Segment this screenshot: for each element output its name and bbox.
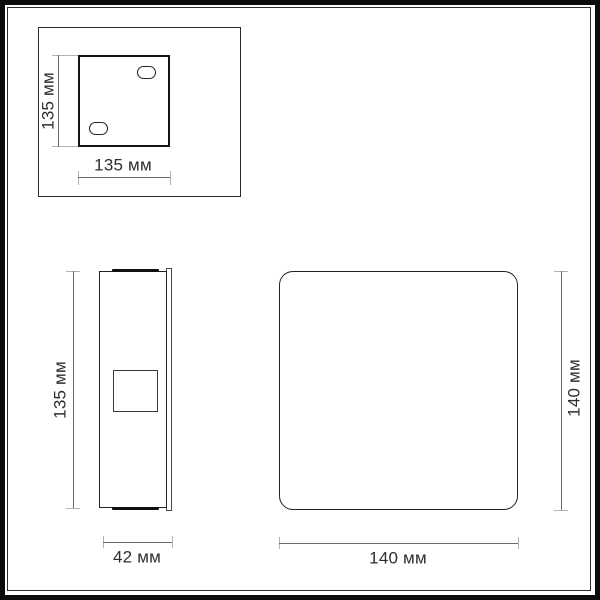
dimension-line: [561, 271, 562, 510]
extension-line: [52, 146, 78, 147]
dimension-label: 42 мм: [113, 549, 161, 566]
dimension-label: 135 мм: [94, 157, 152, 174]
extension-line: [170, 171, 171, 185]
dimension-label: 135 мм: [52, 361, 69, 419]
front-view-outline: [279, 271, 518, 510]
dimension-line: [58, 55, 59, 147]
dimension-line: [103, 542, 172, 543]
dimension-label: 135 мм: [40, 72, 57, 130]
mounting-hole-bottom-left: [89, 122, 108, 135]
mounting-hole-top-right: [137, 66, 156, 79]
side-view-driver-box: [113, 370, 158, 412]
dimension-label: 140 мм: [369, 550, 427, 567]
dimension-line: [78, 177, 170, 178]
dimension-line: [73, 271, 74, 508]
extension-line: [52, 55, 78, 56]
dimension-diagram-canvas: 135 мм 135 мм 135 мм 42 мм 140 мм: [0, 0, 600, 600]
side-view-top-gasket: [112, 269, 159, 273]
dimension-line: [279, 543, 518, 544]
side-view-bottom-gasket: [112, 507, 159, 511]
dimension-label: 140 мм: [566, 359, 583, 417]
extension-line: [78, 171, 79, 185]
